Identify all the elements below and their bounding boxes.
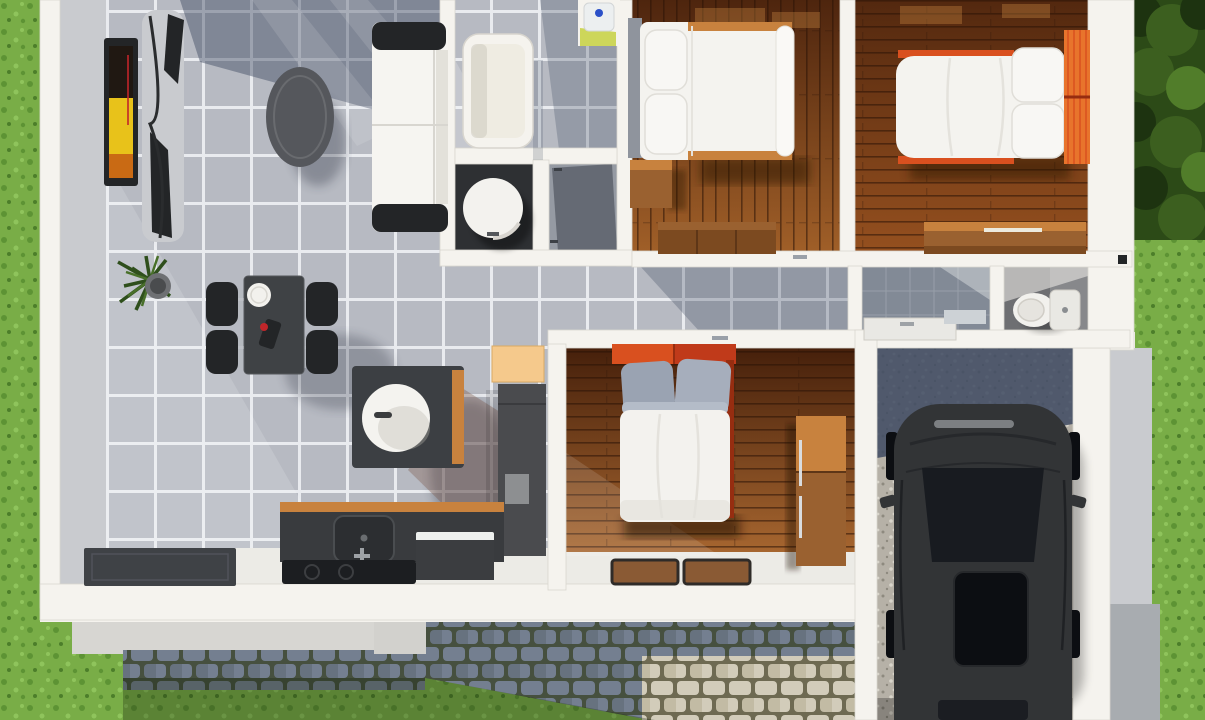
tv-screen-yellow [109, 98, 133, 154]
wardrobe-top-section [796, 416, 846, 472]
cobblestone-path-light [642, 656, 875, 720]
car-windshield [922, 468, 1044, 562]
duvet-fold [620, 500, 730, 520]
appliance [416, 540, 494, 580]
washbasin [578, 0, 620, 46]
shower-slot [487, 232, 499, 236]
tv-screen-orange [109, 154, 133, 178]
washbasin-drain [595, 9, 603, 17]
sofa [372, 22, 448, 232]
outer-wall-bottom [40, 584, 877, 620]
toilet-button [1062, 307, 1068, 313]
orange-cabinet [492, 346, 544, 382]
hedge-bush [1158, 194, 1205, 242]
tub-shadow [533, 60, 543, 160]
wall-bedroom-bottom-left [548, 344, 566, 590]
pillow [1012, 48, 1064, 102]
island-faucet [374, 412, 392, 418]
dining-chair [206, 282, 238, 326]
closet-hinge [554, 168, 562, 171]
door-hinge [793, 255, 807, 259]
dining-chair [206, 330, 238, 374]
sofa-back-cushion [436, 50, 448, 204]
chair-frame [238, 290, 243, 320]
sofa-armrest [372, 22, 446, 50]
bathtub-inner-shade [471, 44, 487, 138]
utility-mirror [944, 310, 986, 324]
utility-faucet [900, 322, 914, 326]
chair-frame [238, 338, 243, 368]
garage-outer-face [1108, 348, 1152, 604]
floor-plan-svg [0, 0, 1205, 720]
garage-outer-face-shaded [1108, 604, 1160, 720]
plant-pot-inner [150, 278, 166, 294]
sink-faucet-neck [360, 548, 364, 560]
pillow [645, 30, 687, 90]
wardrobe-handle [799, 440, 802, 486]
sink-drain [361, 535, 368, 542]
island-wood-edge [452, 370, 464, 464]
car [879, 404, 1087, 720]
rug [684, 560, 750, 584]
utility-counter [864, 318, 956, 340]
bed-headboard-red-left [612, 344, 674, 364]
wall-utility-left [848, 266, 862, 338]
bed-rail [688, 22, 792, 31]
table-decor-red [260, 323, 268, 331]
closet-hinge [550, 240, 558, 243]
bed-rail [688, 151, 792, 160]
door-handle [712, 336, 728, 340]
wall-shower-closet [533, 160, 549, 264]
closet-door-panel [552, 164, 617, 252]
pantry-drawer [505, 474, 529, 504]
tv-screen-dark [109, 46, 133, 98]
wall-wc-left [990, 266, 1004, 338]
pillow [645, 94, 687, 154]
bed-headboard [628, 18, 642, 158]
cooktop [282, 560, 416, 584]
outer-wall-left [40, 0, 60, 608]
wall-bath-bottom [440, 250, 632, 266]
rug [612, 560, 678, 584]
tv-screen-red-line [127, 55, 129, 125]
sofa-armrest [372, 204, 448, 232]
wall-switch [1118, 255, 1127, 264]
bed-shadow [700, 158, 810, 184]
car-rear-window [938, 700, 1028, 720]
dining-chair [306, 282, 338, 326]
outer-wall-right [1088, 0, 1134, 350]
left-wall-face [58, 0, 106, 590]
desk-front [924, 246, 1086, 254]
dresser-top [658, 222, 776, 230]
pantry-unit [498, 384, 546, 556]
dining-chair [306, 330, 338, 374]
desk-object [984, 228, 1042, 232]
pillow [1012, 104, 1064, 158]
car-sunroof [954, 572, 1028, 666]
sunlight-patch [1002, 4, 1050, 18]
garage [879, 404, 1087, 720]
coffee-table [266, 67, 334, 167]
bed-foot-roll [776, 26, 794, 156]
sunlight-patch [900, 6, 962, 24]
wall-garage-left [855, 330, 877, 720]
wall-bedroom-divider [840, 0, 855, 253]
car-front-trim [934, 420, 1014, 428]
toilet-seat [1018, 299, 1044, 321]
nightstand-top [630, 160, 672, 170]
wardrobe-handle [799, 496, 802, 538]
floor-plan-render [0, 0, 1205, 720]
